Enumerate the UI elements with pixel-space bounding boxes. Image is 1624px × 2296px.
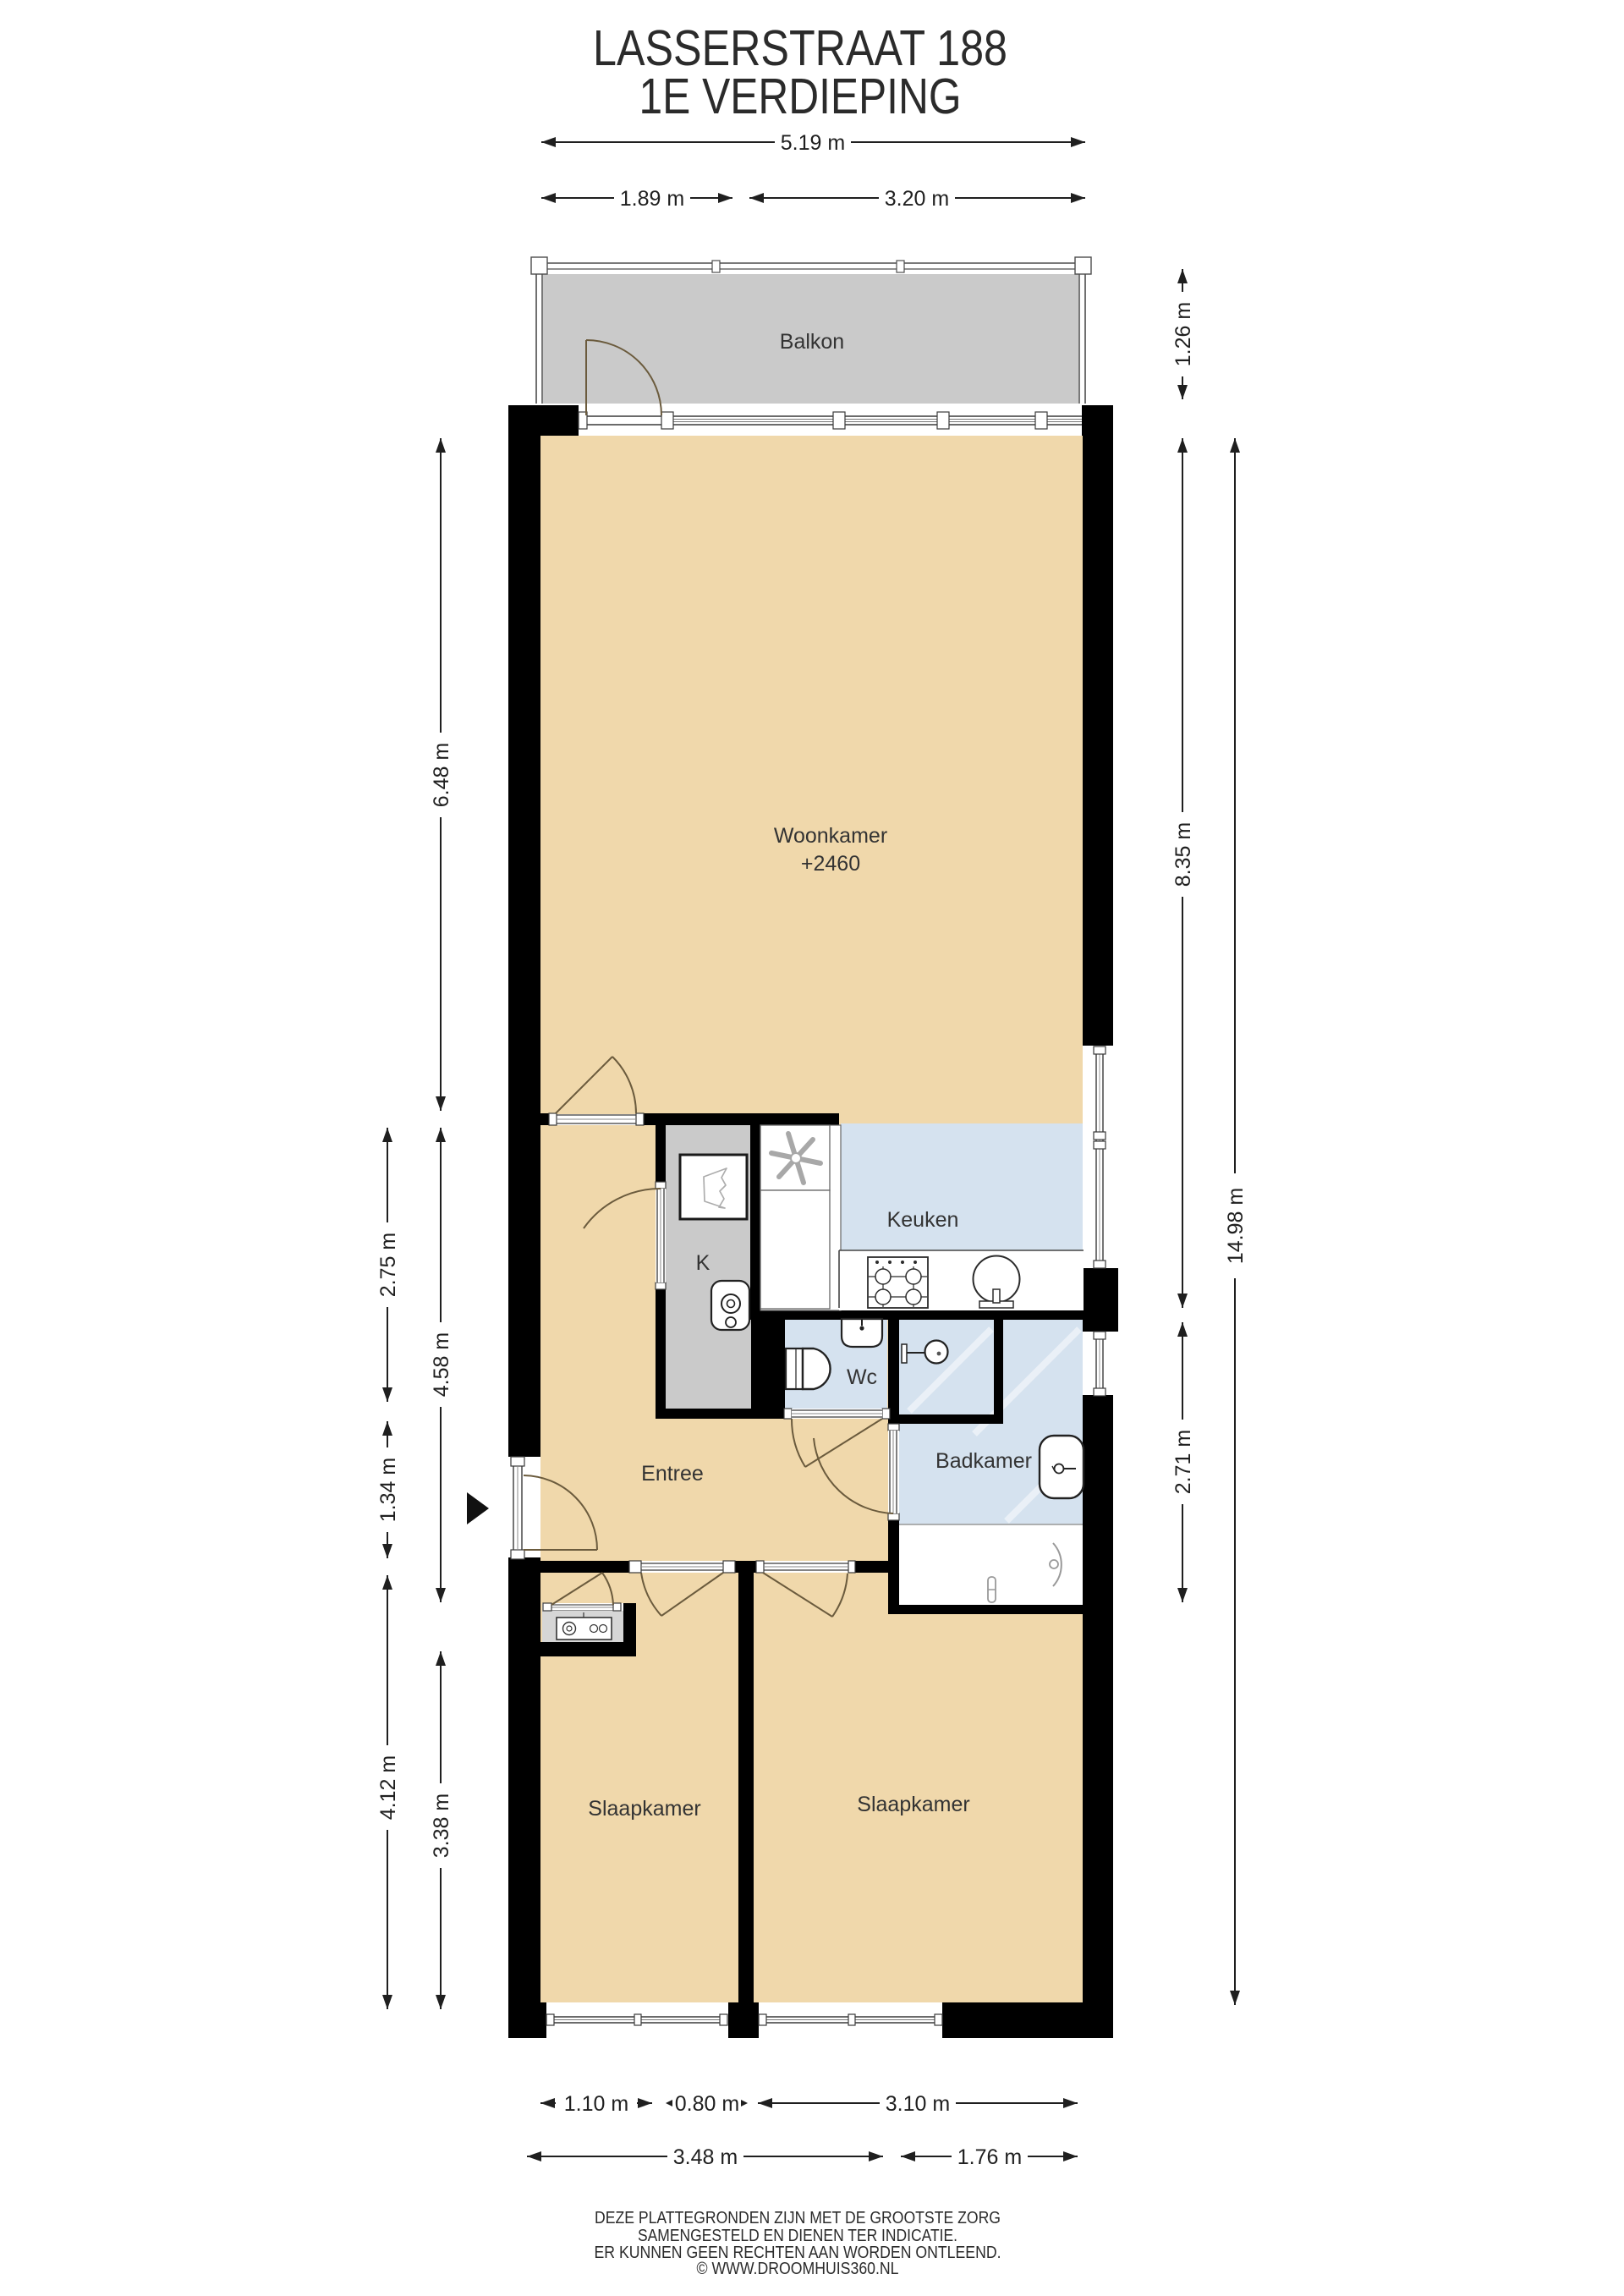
svg-text:SAMENGESTELD EN DIENEN TER IND: SAMENGESTELD EN DIENEN TER INDICATIE.: [638, 2227, 957, 2245]
svg-text:3.48 m: 3.48 m: [673, 2145, 738, 2169]
svg-text:14.98 m: 14.98 m: [1224, 1188, 1248, 1264]
svg-text:Slaapkamer: Slaapkamer: [588, 1797, 700, 1821]
svg-text:Balkon: Balkon: [780, 330, 844, 354]
svg-text:Keuken: Keuken: [887, 1208, 959, 1232]
svg-text:K: K: [696, 1251, 710, 1275]
svg-text:+2460: +2460: [801, 852, 860, 876]
svg-text:1E VERDIEPING: 1E VERDIEPING: [639, 69, 962, 124]
svg-text:3.38 m: 3.38 m: [430, 1793, 453, 1858]
svg-text:3.20 m: 3.20 m: [885, 187, 949, 211]
svg-text:1.34 m: 1.34 m: [376, 1458, 400, 1522]
svg-text:1.10 m: 1.10 m: [564, 2092, 628, 2116]
svg-text:8.35 m: 8.35 m: [1171, 822, 1195, 887]
svg-text:Entree: Entree: [641, 1462, 704, 1486]
svg-text:3.10 m: 3.10 m: [886, 2092, 950, 2116]
svg-text:© WWW.DROOMHUIS360.NL: © WWW.DROOMHUIS360.NL: [697, 2260, 899, 2278]
svg-text:4.58 m: 4.58 m: [430, 1332, 453, 1397]
svg-text:Slaapkamer: Slaapkamer: [857, 1793, 969, 1816]
svg-text:0.80 m: 0.80 m: [675, 2092, 739, 2116]
svg-text:Wc: Wc: [847, 1365, 877, 1389]
svg-text:2.75 m: 2.75 m: [376, 1233, 400, 1297]
svg-text:DEZE PLATTEGRONDEN ZIJN MET DE: DEZE PLATTEGRONDEN ZIJN MET DE GROOTSTE …: [595, 2209, 1001, 2227]
svg-text:1.26 m: 1.26 m: [1171, 302, 1195, 366]
svg-text:Woonkamer: Woonkamer: [774, 824, 887, 848]
svg-text:4.12 m: 4.12 m: [376, 1755, 400, 1820]
svg-text:2.71 m: 2.71 m: [1171, 1430, 1195, 1494]
svg-text:5.19 m: 5.19 m: [781, 131, 845, 155]
svg-text:6.48 m: 6.48 m: [430, 743, 453, 807]
svg-text:1.76 m: 1.76 m: [957, 2145, 1022, 2169]
svg-text:Badkamer: Badkamer: [935, 1449, 1032, 1473]
svg-text:1.89 m: 1.89 m: [620, 187, 684, 211]
